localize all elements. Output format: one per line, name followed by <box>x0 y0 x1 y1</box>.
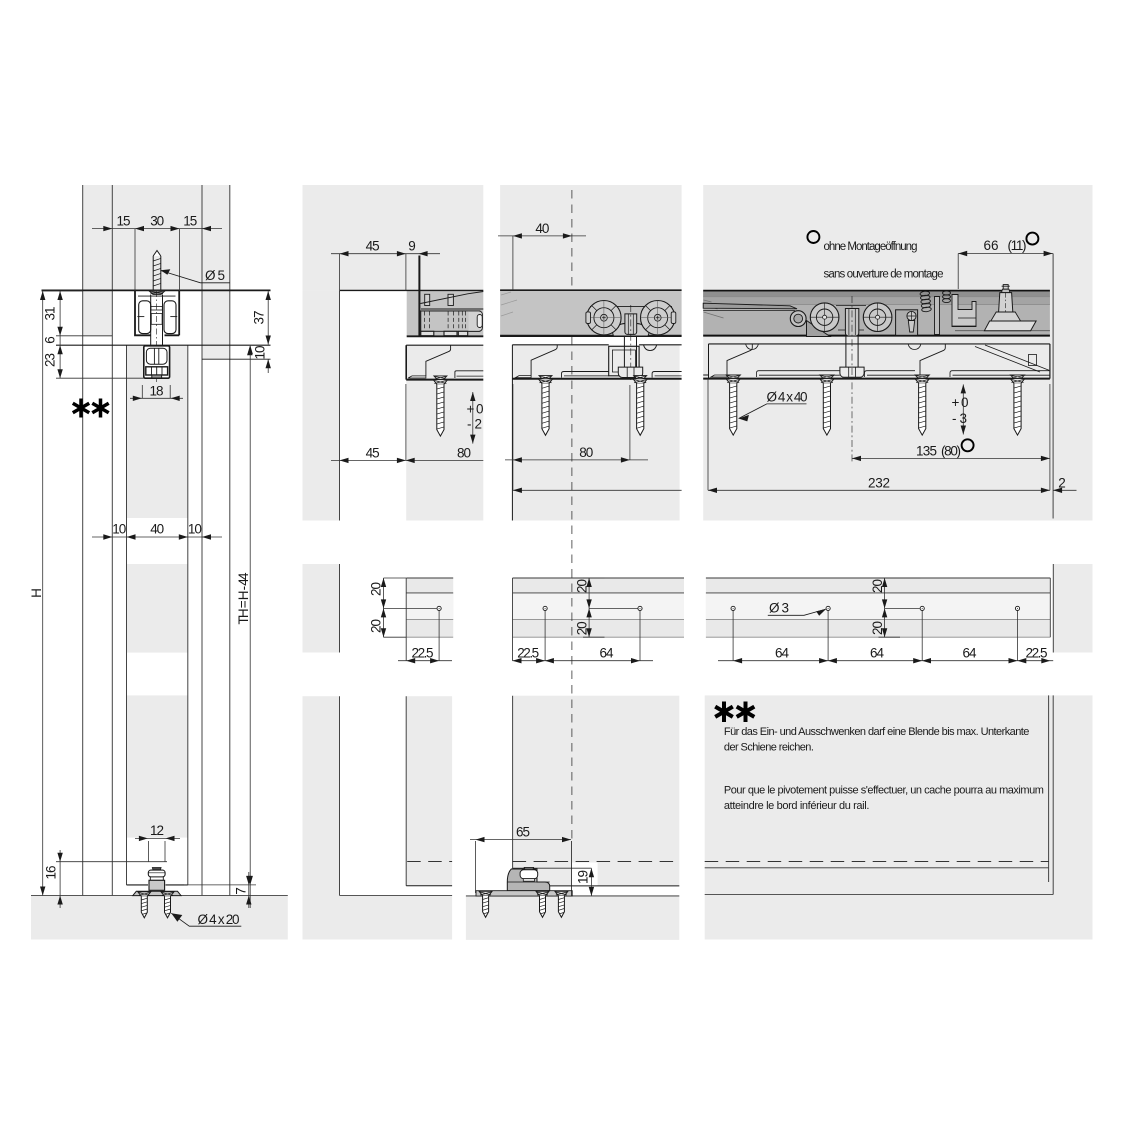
svg-text:Pour que le pivotement puisse: Pour que le pivotement puisse s'effectue… <box>724 785 1044 797</box>
svg-text:15: 15 <box>183 214 197 229</box>
svg-text:12: 12 <box>150 823 164 838</box>
svg-text:10: 10 <box>188 522 202 537</box>
svg-text:31: 31 <box>43 307 58 321</box>
svg-text:64: 64 <box>600 646 614 661</box>
svg-text:10: 10 <box>253 346 268 360</box>
svg-text:80: 80 <box>457 445 471 460</box>
svg-text:20: 20 <box>870 579 885 593</box>
svg-text:135: 135 <box>916 443 937 458</box>
svg-text:Ø 3: Ø 3 <box>769 601 789 616</box>
svg-text:22.5: 22.5 <box>517 646 539 661</box>
svg-text:20: 20 <box>369 619 384 633</box>
svg-text:37: 37 <box>252 311 267 325</box>
svg-text:45: 45 <box>366 239 380 254</box>
svg-text:Für das Ein- und Ausschwenken: Für das Ein- und Ausschwenken darf eine … <box>724 726 1030 738</box>
svg-text:der Schiene reichen.: der Schiene reichen. <box>724 741 814 753</box>
svg-text:+ 0: + 0 <box>467 401 484 416</box>
svg-text:232: 232 <box>868 475 890 490</box>
svg-text:Ø 5: Ø 5 <box>205 268 225 283</box>
svg-text:7: 7 <box>234 887 249 895</box>
svg-text:40: 40 <box>150 522 164 537</box>
svg-text:15: 15 <box>117 214 131 229</box>
svg-text:- 3: - 3 <box>952 411 967 426</box>
svg-text:22.5: 22.5 <box>412 646 434 661</box>
svg-text:40: 40 <box>535 221 549 236</box>
svg-text:64: 64 <box>870 646 884 661</box>
svg-text:10: 10 <box>112 522 126 537</box>
svg-text:20: 20 <box>870 621 885 635</box>
svg-text:atteindre le bord inférieur du: atteindre le bord inférieur du rail. <box>724 800 870 812</box>
svg-text:20: 20 <box>574 621 589 635</box>
svg-text:30: 30 <box>150 214 164 229</box>
svg-text:64: 64 <box>775 646 789 661</box>
svg-text:+ 0: + 0 <box>952 395 969 410</box>
svg-text:20: 20 <box>574 579 589 593</box>
svg-text:6: 6 <box>43 336 58 344</box>
svg-text:80: 80 <box>579 445 593 460</box>
svg-text:19: 19 <box>576 870 591 884</box>
svg-text:(80): (80) <box>941 443 961 458</box>
svg-text:64: 64 <box>963 646 977 661</box>
svg-text:65: 65 <box>516 825 530 840</box>
svg-text:Ø 4 x 40: Ø 4 x 40 <box>767 390 808 405</box>
svg-text:9: 9 <box>408 239 416 254</box>
svg-text:- 2: - 2 <box>467 417 482 432</box>
svg-text:Ø 4 x 20: Ø 4 x 20 <box>198 912 240 927</box>
svg-text:H: H <box>29 588 44 598</box>
svg-text:2: 2 <box>1058 475 1066 490</box>
svg-text:22.5: 22.5 <box>1026 646 1048 661</box>
svg-text:ohne Montageöffnung: ohne Montageöffnung <box>824 241 918 253</box>
svg-text:45: 45 <box>366 445 380 460</box>
svg-text:66: 66 <box>984 238 999 253</box>
svg-text:20: 20 <box>369 582 384 596</box>
svg-text:23: 23 <box>43 353 58 367</box>
svg-text:(11): (11) <box>1008 238 1027 253</box>
svg-text:sans ouverture de montage: sans ouverture de montage <box>824 268 944 280</box>
svg-text:18: 18 <box>150 384 164 399</box>
svg-text:16: 16 <box>44 866 59 880</box>
svg-text:TH = H - 44: TH = H - 44 <box>236 572 251 624</box>
